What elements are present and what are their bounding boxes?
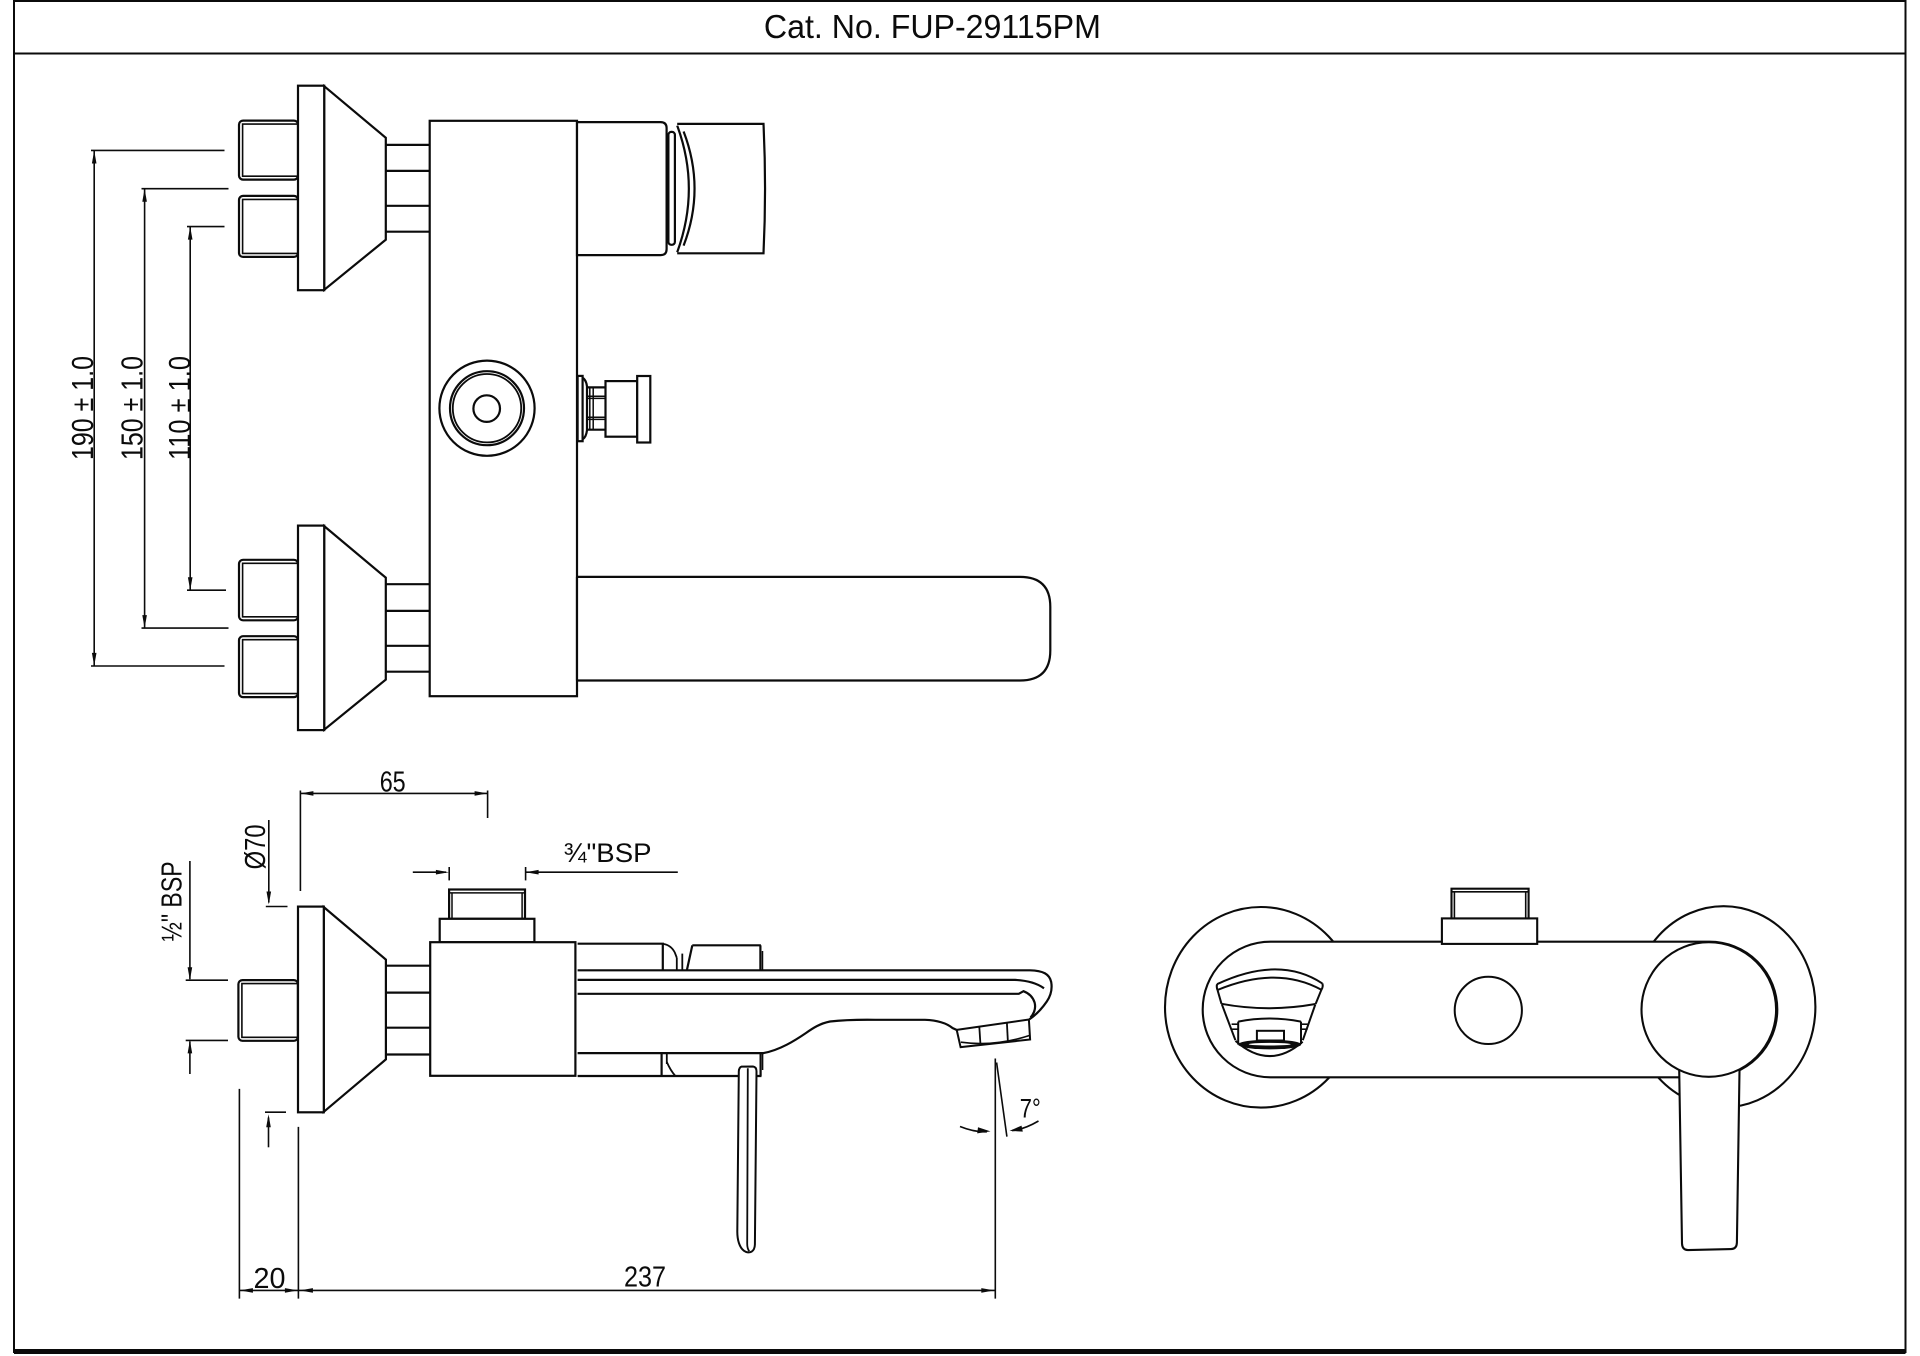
svg-text:237: 237 bbox=[624, 1262, 666, 1294]
svg-text:Cat. No. FUP-29115PM: Cat. No. FUP-29115PM bbox=[764, 8, 1101, 45]
svg-text:½" BSP: ½" BSP bbox=[156, 861, 188, 941]
svg-text:110 ± 1.0: 110 ± 1.0 bbox=[162, 356, 197, 460]
svg-text:65: 65 bbox=[380, 767, 406, 799]
svg-text:7°: 7° bbox=[1020, 1094, 1041, 1124]
svg-text:¾"BSP: ¾"BSP bbox=[564, 838, 652, 868]
svg-text:20: 20 bbox=[254, 1263, 286, 1295]
svg-text:Ø70: Ø70 bbox=[240, 824, 272, 869]
svg-text:190 ± 1.0: 190 ± 1.0 bbox=[65, 356, 100, 460]
svg-text:150 ± 1.0: 150 ± 1.0 bbox=[115, 356, 150, 460]
